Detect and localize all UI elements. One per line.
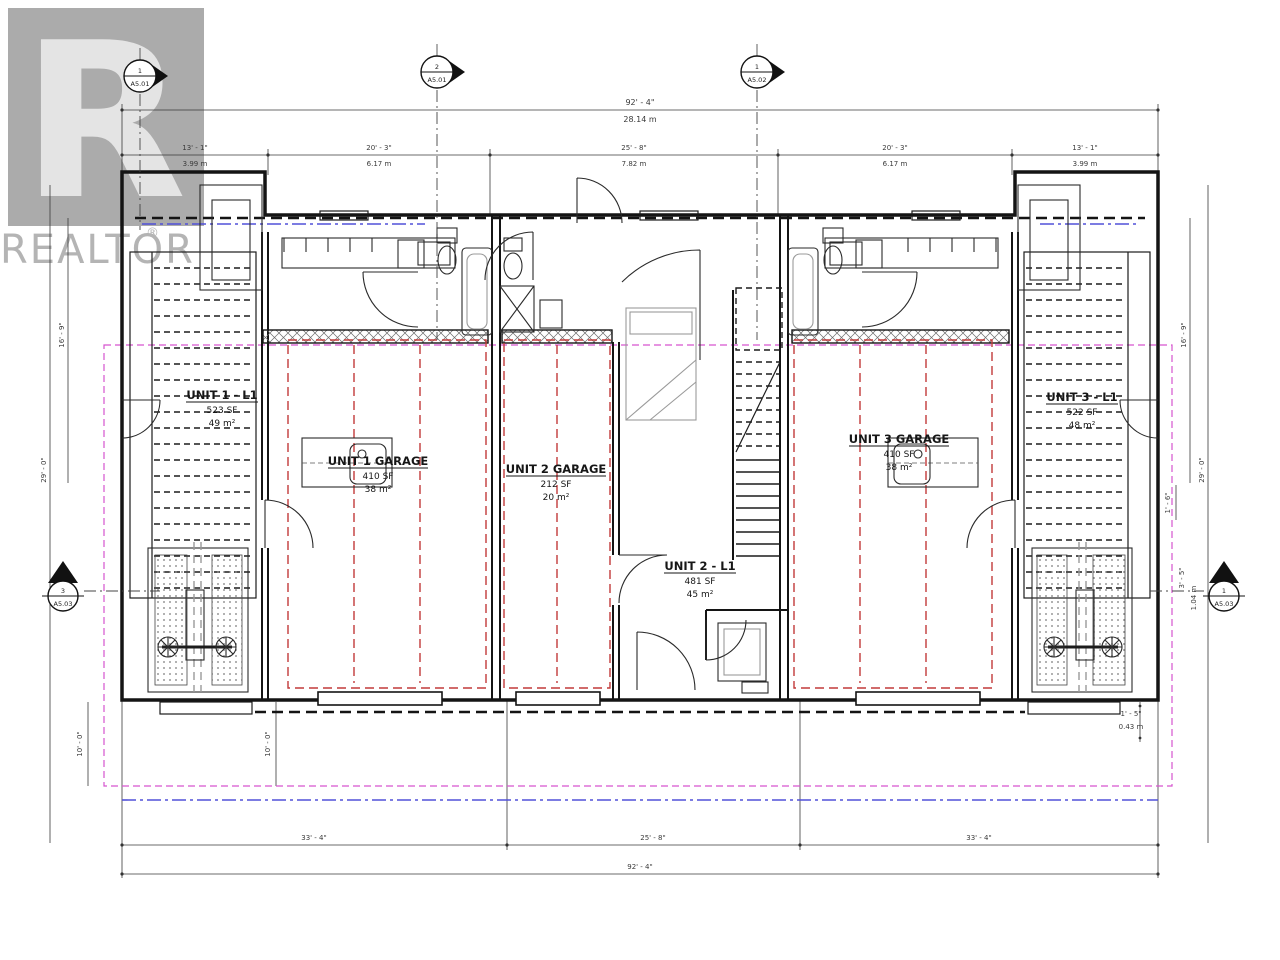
entry-closet [1018,185,1080,290]
dim-seg-1-m: 3.99 m [183,160,208,168]
toilet [438,246,456,274]
marker-sheet: A5.03 [54,600,73,608]
registered-trademark-symbol: ® [146,226,159,241]
dim-top-overall-ft: 92' - 4" [625,98,654,107]
lower-bath-door-unit2 [706,620,746,660]
dim-seg-2-ft: 20' - 3" [366,144,391,152]
section-markers: 1 A5.01 2 A5.01 1 A5.02 3 A5.0 [42,44,1245,611]
hatched-wall-unit1 [263,330,488,343]
marker-sheet: A5.01 [131,80,150,88]
dim-right-offset-m: 1.04 m [1190,586,1198,611]
dim-bot-seg-1: 33' - 4" [301,834,326,842]
dim-seg-2-m: 6.17 m [367,160,392,168]
garage-clearance-outlines [288,340,992,688]
stoop-right [1028,702,1120,714]
realtor-watermark: R REALTOR ® [0,0,204,273]
unit3-title: UNIT 3 - L1 [1046,390,1117,404]
dim-bot-overall: 92' - 4" [627,863,652,871]
garage-door-unit1 [318,692,442,705]
label-unit3-garage: UNIT 3 GARAGE 410 SF 38 m² [849,432,950,473]
toilet-tank [823,228,843,243]
section-marker-2-a501: 2 A5.01 [421,44,465,340]
unit3-garage-m2: 38 m² [886,463,913,473]
dim-right-bottom-ft: 1' - 5" [1120,710,1141,718]
label-unit1: UNIT 1 - L1 523 SF 49 m² [186,388,258,429]
dim-seg-3-ft: 25' - 8" [621,144,646,152]
unit2-garage-sf: 212 SF [541,480,572,490]
dim-seg-1-ft: 13' - 1" [182,144,207,152]
bath-door-unit3 [862,272,917,327]
dim-seg-4-ft: 20' - 3" [882,144,907,152]
marker-number: 3 [61,587,65,595]
section-marker-3-a503: 3 A5.03 [42,561,160,611]
front-door-unit3 [1120,400,1158,438]
top-dimensions: 92' - 4" 28.14 m 13' - 1" 3.99 m 20' - 3… [120,98,1159,215]
dim-right-inner: 16' - 9" [1180,322,1188,347]
closet-door-unit2 [622,250,700,360]
dim-right-outer: 29' - 0" [1198,457,1206,482]
stairs-unit1 [130,252,256,598]
unit1-title: UNIT 1 - L1 [186,388,257,402]
dim-top-overall-m: 28.14 m [623,115,656,124]
unit1-garage-title: UNIT 1 GARAGE [328,454,429,468]
dim-seg-5-ft: 13' - 1" [1072,144,1097,152]
unit1-sf: 523 SF [207,406,238,416]
marker-sheet: A5.03 [1215,600,1234,608]
stairs-unit2 [736,288,782,556]
marker-sheet: A5.01 [428,76,447,84]
label-unit3: UNIT 3 - L1 522 SF 48 m² [1046,390,1118,431]
dim-left-bottom-2: 10' - 0" [264,731,272,756]
realtor-logo-letter: R [21,0,187,247]
marker-number: 1 [1222,587,1226,595]
unit3-garage-title: UNIT 3 GARAGE [849,432,950,446]
garage-door-unit3 [856,692,980,705]
dim-seg-3-m: 7.82 m [622,160,647,168]
label-unit2: UNIT 2 - L1 481 SF 45 m² [664,559,736,600]
unit2-sf: 481 SF [685,577,716,587]
unit1-m2: 49 m² [209,419,236,429]
kitchen-sink [418,242,450,265]
unit1-garage-sf: 410 SF [363,472,394,482]
label-unit1-garage: UNIT 1 GARAGE 410 SF 38 m² [328,454,429,495]
equipment-right [1032,542,1132,692]
dim-left-bottom-1: 10' - 0" [76,731,84,756]
dim-bot-seg-3: 33' - 4" [966,834,991,842]
dim-right-step: 1' - 6" [1164,492,1172,513]
equipment-left [148,542,248,692]
marker-sheet: A5.02 [748,76,767,84]
bath-sink [540,300,562,328]
garage-door-int-unit3 [967,500,1015,548]
dim-bot-seg-2: 25' - 8" [640,834,665,842]
unit2-m2: 45 m² [687,590,714,600]
vanity-sink [398,240,424,268]
entry-closet [200,185,262,290]
unit2-title: UNIT 2 - L1 [664,559,735,573]
unit2-garage-title: UNIT 2 GARAGE [506,462,607,476]
hatched-wall-unit3 [792,330,1009,343]
vanity-sink [856,240,882,268]
unit3-m2: 48 m² [1069,421,1096,431]
building-walls [122,172,1158,714]
front-door-unit1 [122,400,160,438]
realtor-watermark-text: REALTOR [0,227,195,273]
dim-left-inner: 16' - 9" [58,322,66,347]
garage-door-unit2 [516,692,600,705]
shower [718,623,766,681]
unit3-sf: 522 SF [1067,408,1098,418]
bath-door-unit1 [363,272,418,327]
floor-plan-drawing: R REALTOR ® 92' - 4" 28.14 m 13' - 1" 3.… [0,0,1280,960]
marker-number: 1 [138,67,142,75]
bed [626,308,696,420]
dim-right-bottom-m: 0.43 m [1119,723,1144,731]
dim-seg-4-m: 6.17 m [883,160,908,168]
garage-door-int-unit1 [265,500,313,548]
toilet [824,246,842,274]
toilet-tank [437,228,457,243]
lower-hall-door-unit2 [637,632,695,690]
doors [122,178,1158,690]
stoop-left [160,702,252,714]
unit3-garage-sf: 410 SF [884,450,915,460]
dim-right-offset-ft: 3' - 5" [1178,567,1186,588]
kitchen-sink [830,242,862,265]
marker-number: 2 [435,63,439,71]
section-marker-1-a502: 1 A5.02 [741,44,785,340]
dim-seg-5-m: 3.99 m [1073,160,1098,168]
label-unit2-garage: UNIT 2 GARAGE 212 SF 20 m² [506,462,607,503]
marker-number: 1 [755,63,759,71]
bath-sink [742,682,768,693]
unit1-garage-m2: 38 m² [365,485,392,495]
unit2-garage-m2: 20 m² [543,493,570,503]
floor-plan-sheet: R REALTOR ® 92' - 4" 28.14 m 13' - 1" 3.… [0,0,1280,960]
dim-left-outer: 29' - 0" [40,457,48,482]
toilet [504,253,522,279]
garage-door-int-unit2 [619,555,667,603]
